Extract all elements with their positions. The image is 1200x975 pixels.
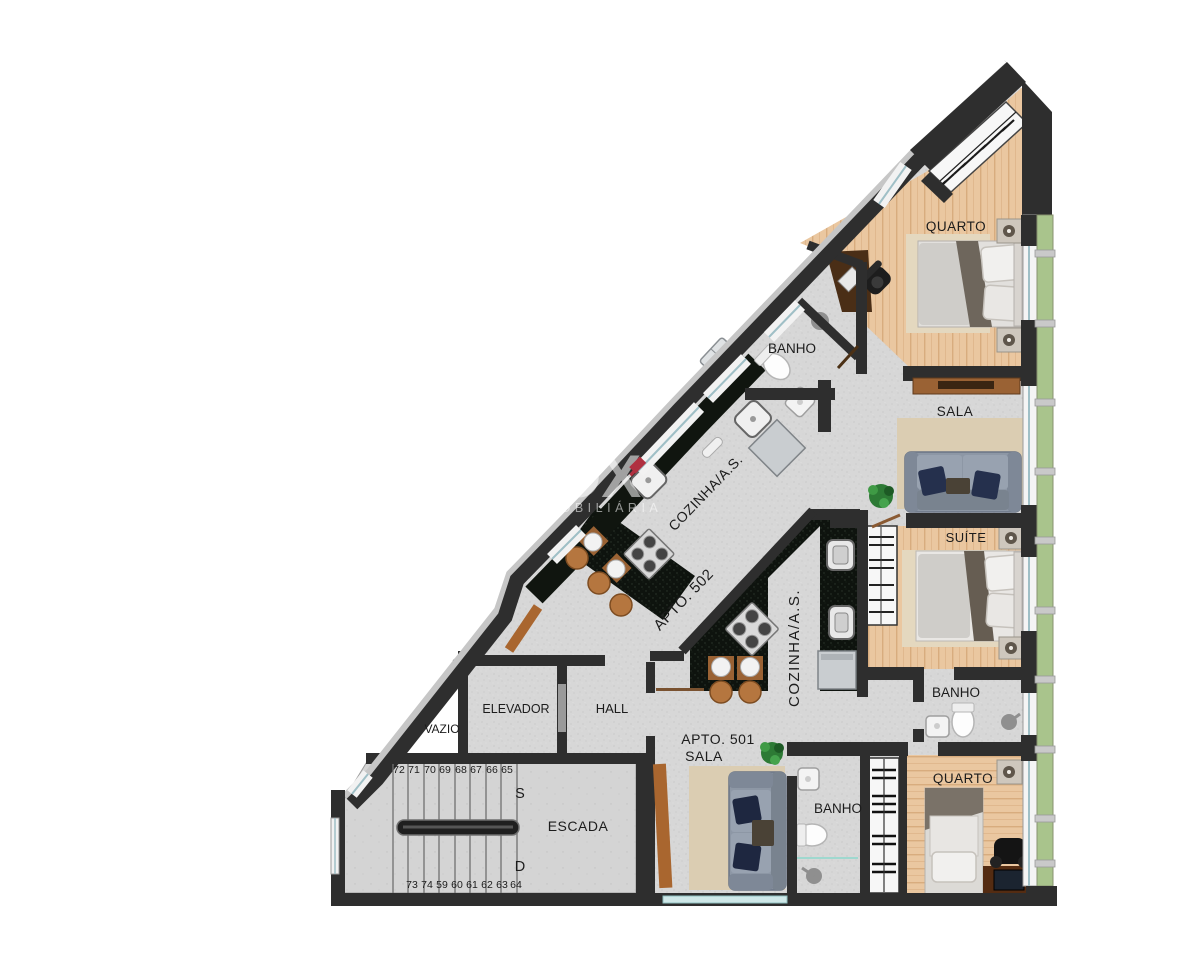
svg-text:S: S xyxy=(515,786,525,802)
svg-text:QUARTO: QUARTO xyxy=(926,219,986,234)
svg-text:69: 69 xyxy=(439,764,451,776)
svg-text:SALA: SALA xyxy=(937,404,974,419)
svg-text:ESCADA: ESCADA xyxy=(548,818,609,834)
svg-text:66: 66 xyxy=(486,764,498,776)
svg-text:68: 68 xyxy=(455,764,467,776)
svg-text:70: 70 xyxy=(424,764,436,776)
svg-text:SUÍTE: SUÍTE xyxy=(946,530,987,545)
svg-text:VAZIO: VAZIO xyxy=(424,722,459,736)
svg-text:SALA: SALA xyxy=(685,748,723,764)
svg-text:D: D xyxy=(515,859,525,875)
svg-text:BANHO: BANHO xyxy=(932,685,980,700)
svg-text:BANHO: BANHO xyxy=(814,801,862,816)
svg-text:BANHO: BANHO xyxy=(768,341,816,356)
svg-text:71: 71 xyxy=(408,764,420,776)
svg-text:APTO. 501: APTO. 501 xyxy=(681,731,755,747)
svg-text:74: 74 xyxy=(421,879,433,891)
svg-text:61: 61 xyxy=(466,879,478,891)
svg-text:QUARTO: QUARTO xyxy=(933,771,993,786)
svg-text:64: 64 xyxy=(510,879,522,891)
svg-text:73: 73 xyxy=(406,879,418,891)
svg-text:63: 63 xyxy=(496,879,508,891)
svg-text:62: 62 xyxy=(481,879,493,891)
svg-text:COZINHA/A.S.: COZINHA/A.S. xyxy=(786,589,803,707)
svg-text:72: 72 xyxy=(393,764,405,776)
svg-text:65: 65 xyxy=(501,764,513,776)
svg-text:IMOBILIÁRIA: IMOBILIÁRIA xyxy=(538,500,663,515)
svg-text:OX: OX xyxy=(555,443,642,510)
svg-text:60: 60 xyxy=(451,879,463,891)
svg-text:59: 59 xyxy=(436,879,448,891)
svg-text:67: 67 xyxy=(470,764,482,776)
svg-text:ELEVADOR: ELEVADOR xyxy=(482,702,549,716)
svg-text:HALL: HALL xyxy=(596,701,629,716)
